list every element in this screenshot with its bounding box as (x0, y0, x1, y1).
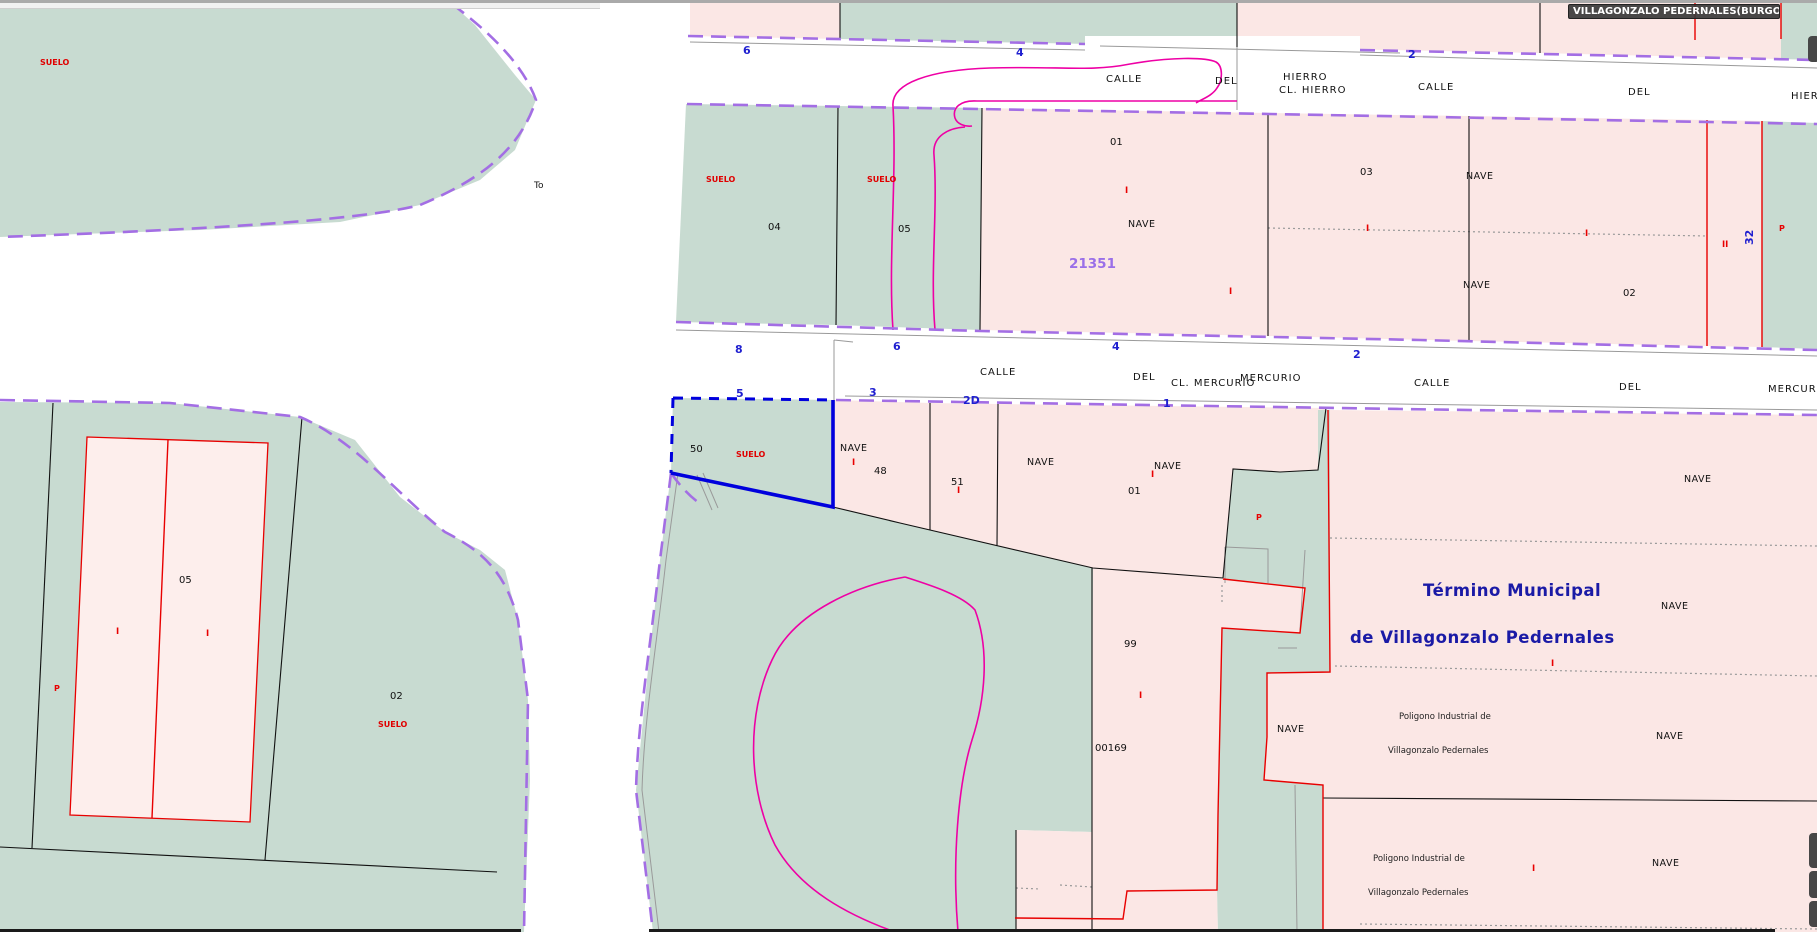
parcel-02sw-p: P (54, 684, 60, 693)
dotline-storey-1: I (1366, 224, 1369, 234)
streetnum-hierro-6: 6 (743, 44, 751, 57)
cadastral-map-canvas[interactable]: SUELOToCALLEDELHIERROCL. HIERROCALLEDELH… (0, 0, 1817, 932)
parcel-04[interactable] (676, 104, 838, 325)
parcel-01-mid[interactable] (980, 108, 1268, 336)
municipality-tooltip: VILLAGONZALO PEDERNALES(BURGOS) (1568, 4, 1780, 19)
right-poligono-2b: Villagonzalo Pedernales (1368, 888, 1469, 898)
streetnum-mercurio-8: 8 (735, 343, 743, 356)
parcel-topstrip-pink1[interactable] (690, 0, 840, 39)
right-poligono-2a: Poligono Industrial de (1373, 854, 1465, 864)
parcel-01s-nave2: NAVE (1154, 461, 1182, 472)
right-nave-3: NAVE (1656, 731, 1684, 742)
building-05-num: 05 (179, 575, 192, 586)
right-nave-2: NAVE (1661, 601, 1689, 612)
parcel-notch-bottom[interactable] (1016, 830, 1092, 932)
label-suelo-topleft: SUELO (40, 58, 70, 67)
street-calle-mercurio-2b: DEL (1619, 382, 1642, 393)
parcel-02mid-num: 02 (1623, 288, 1636, 299)
street-calle-hierro-1c: HIERRO (1283, 72, 1328, 83)
parcel-02sw-num: 02 (390, 691, 403, 702)
parcel-03-nave2: NAVE (1463, 280, 1491, 291)
corridor-p: P (1256, 513, 1262, 522)
streetnum-mercurio-1: 1 (1163, 397, 1171, 410)
street-calle-hierro-1a: CALLE (1106, 74, 1142, 85)
streetnum-mercurio-5: 5 (736, 387, 744, 400)
parcel-51-storey: I (957, 486, 960, 496)
streetnum-mercurio-3: 3 (869, 386, 877, 399)
edge-widget-bottom-1[interactable] (1809, 833, 1817, 868)
parcel-01-storey: I (1125, 186, 1128, 196)
parcel-01-ref: 21351 (1069, 256, 1116, 272)
edge-widget-top[interactable] (1808, 36, 1817, 62)
right-nave-4: NAVE (1652, 858, 1680, 869)
parcel-99-num: 99 (1124, 639, 1137, 650)
building-05-storey2: I (206, 629, 209, 639)
parcel-poligono-industrial[interactable] (1264, 410, 1817, 932)
street-calle-hierro-2c: HIERRO (1791, 91, 1817, 102)
parcel-48-storey: I (852, 458, 855, 468)
building-05[interactable] (70, 437, 268, 822)
street-calle-mercurio-1a: CALLE (980, 367, 1016, 378)
parcel-g5-green[interactable] (1762, 121, 1817, 349)
streetnum-mercurio-2: 2 (1353, 348, 1361, 361)
parcel-01-num: 01 (1110, 137, 1123, 148)
label-to: To (533, 181, 544, 191)
map-top-strip (0, 3, 600, 9)
street-calle-mercurio-2c: MERCURIO (1768, 384, 1817, 395)
parcel-48-num: 48 (874, 466, 887, 477)
right-storey-2: I (1532, 864, 1535, 874)
parcel-01-nave: NAVE (1128, 219, 1156, 230)
parcel-03-num: 03 (1360, 167, 1373, 178)
parcel-50-num: 50 (690, 444, 703, 455)
parcel-05mid-suelo: SUELO (867, 175, 897, 184)
parcel-05mid-num: 05 (898, 224, 911, 235)
right-poligono-1b: Villagonzalo Pedernales (1388, 746, 1489, 756)
parcel-01s-num: 01 (1128, 486, 1141, 497)
streetnum-mercurio-6: 6 (893, 340, 901, 353)
territory-title-line2: de Villagonzalo Pedernales (1350, 628, 1615, 647)
road-axis-cross (834, 340, 853, 400)
parcel-01s-nave1: NAVE (1027, 457, 1055, 468)
streetnum-hierro-4: 4 (1016, 46, 1024, 59)
parcel-99-storey: I (1139, 691, 1142, 701)
street-cl-hierro: CL. HIERRO (1279, 85, 1346, 96)
street-calle-hierro-2a: CALLE (1418, 82, 1454, 93)
dotline-storey-2: I (1585, 229, 1588, 239)
street-calle-mercurio-2a: CALLE (1414, 378, 1450, 389)
right-poligono-1a: Poligono Industrial de (1399, 712, 1491, 722)
right-storey-1: I (1551, 659, 1554, 669)
streetnum-hierro-2: 2 (1408, 48, 1416, 61)
corridor-nave: NAVE (1277, 724, 1305, 735)
parcel-04-num: 04 (768, 222, 781, 233)
parcel-g4-storeys: II (1722, 240, 1728, 250)
parcel-03-nave: NAVE (1466, 171, 1494, 182)
parcel-suelo-topleft[interactable] (0, 4, 536, 237)
right-nave-1: NAVE (1684, 474, 1712, 485)
parcel-01s-storey: I (1151, 470, 1154, 480)
parcel-51[interactable] (930, 403, 998, 546)
streetnum-mercurio-2d: 2D (963, 394, 980, 407)
parcel-02sw-suelo: SUELO (378, 720, 408, 729)
parcel-g4-num32: 32 (1743, 230, 1756, 245)
territory-title-line1: Término Municipal (1423, 581, 1601, 600)
parcel-05-mid[interactable] (836, 106, 982, 330)
street-calle-hierro-1b: DEL (1215, 76, 1238, 87)
map-viewport: SUELOToCALLEDELHIERROCL. HIERROCALLEDELH… (0, 0, 1817, 932)
street-calle-mercurio-1c: MERCURIO (1240, 373, 1301, 384)
parcel-48-nave: NAVE (840, 443, 868, 454)
edge-widget-bottom-3[interactable] (1809, 901, 1817, 927)
parcel-99-ref: 00169 (1095, 743, 1127, 754)
building-05-storey1: I (116, 627, 119, 637)
parcel-green-corridor[interactable] (1217, 410, 1330, 932)
street-calle-mercurio-1b: DEL (1133, 372, 1156, 383)
parcel-g5-p: P (1779, 224, 1785, 233)
parcel-04-suelo: SUELO (706, 175, 736, 184)
streetnum-mercurio-4: 4 (1112, 340, 1120, 353)
street-calle-hierro-2b: DEL (1628, 87, 1651, 98)
edge-widget-bottom-2[interactable] (1809, 871, 1817, 898)
parcel-01-storey2: I (1229, 287, 1232, 297)
parcel-50-suelo: SUELO (736, 450, 766, 459)
